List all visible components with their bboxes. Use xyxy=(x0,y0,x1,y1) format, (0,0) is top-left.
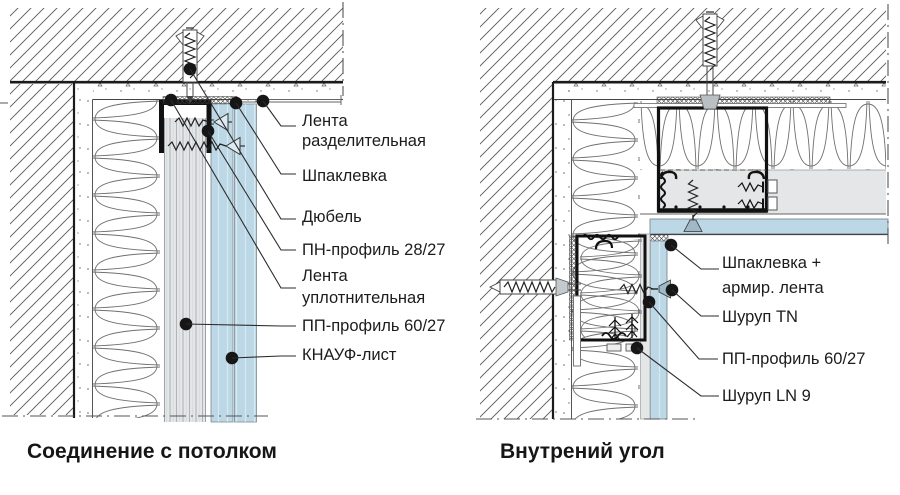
putty-reinforcing-tape-joint xyxy=(650,235,668,241)
callout-label: разделительная xyxy=(302,132,426,150)
pn-profile-web-gap xyxy=(164,105,206,118)
connector-clip-lower xyxy=(768,197,777,210)
callout-label: Лента xyxy=(302,112,348,130)
callout-label: уплотнительная xyxy=(302,289,425,307)
panel-internal-corner: Шпаклевка + армир. лента Шуруп TN ПП-про… xyxy=(476,4,888,463)
construction-detail-figure: Лента разделительная Шпаклевка Дюбель ПН… xyxy=(0,0,900,495)
callout-label: Шпаклевка + xyxy=(722,254,821,272)
sealing-tape-ceiling xyxy=(657,97,830,104)
wall-plaster-strip xyxy=(76,83,93,418)
wall-concrete-hatch xyxy=(10,84,74,415)
knauf-wall-sheet-texture xyxy=(651,241,668,419)
panel-title-right: Внутрений угол xyxy=(500,440,665,463)
hanger-bracket xyxy=(574,296,581,366)
fixing-clip-left xyxy=(607,344,621,351)
callout-label: армир. лента xyxy=(722,279,825,297)
callout-label: Шпаклевка xyxy=(302,167,388,185)
callout-label: Шуруп LN 9 xyxy=(722,387,811,405)
panel-ceiling-connection: Лента разделительная Шпаклевка Дюбель ПН… xyxy=(0,2,445,463)
panel-title-left: Соединение с потолком xyxy=(27,440,277,463)
knauf-sheet-texture xyxy=(211,104,257,422)
callout-label: ПН-профиль 28/27 xyxy=(302,241,445,259)
callout-label: Лента xyxy=(302,267,348,285)
connector-clip-upper xyxy=(768,180,777,193)
callout-label: КНАУФ-лист xyxy=(302,346,397,364)
callout-label: Шуруп TN xyxy=(722,308,798,326)
drawing-canvas: Лента разделительная Шпаклевка Дюбель ПН… xyxy=(0,0,900,495)
callout-label: ПП-профиль 60/27 xyxy=(302,317,445,335)
insulation-layer xyxy=(93,100,160,418)
callout-label: Дюбель xyxy=(302,208,362,226)
wall-plaster-strip xyxy=(555,84,572,419)
ceiling-concrete-hatch xyxy=(10,8,343,81)
callout-label: ПП-профиль 60/27 xyxy=(722,350,865,368)
ceiling-insulation-layer xyxy=(640,101,886,170)
